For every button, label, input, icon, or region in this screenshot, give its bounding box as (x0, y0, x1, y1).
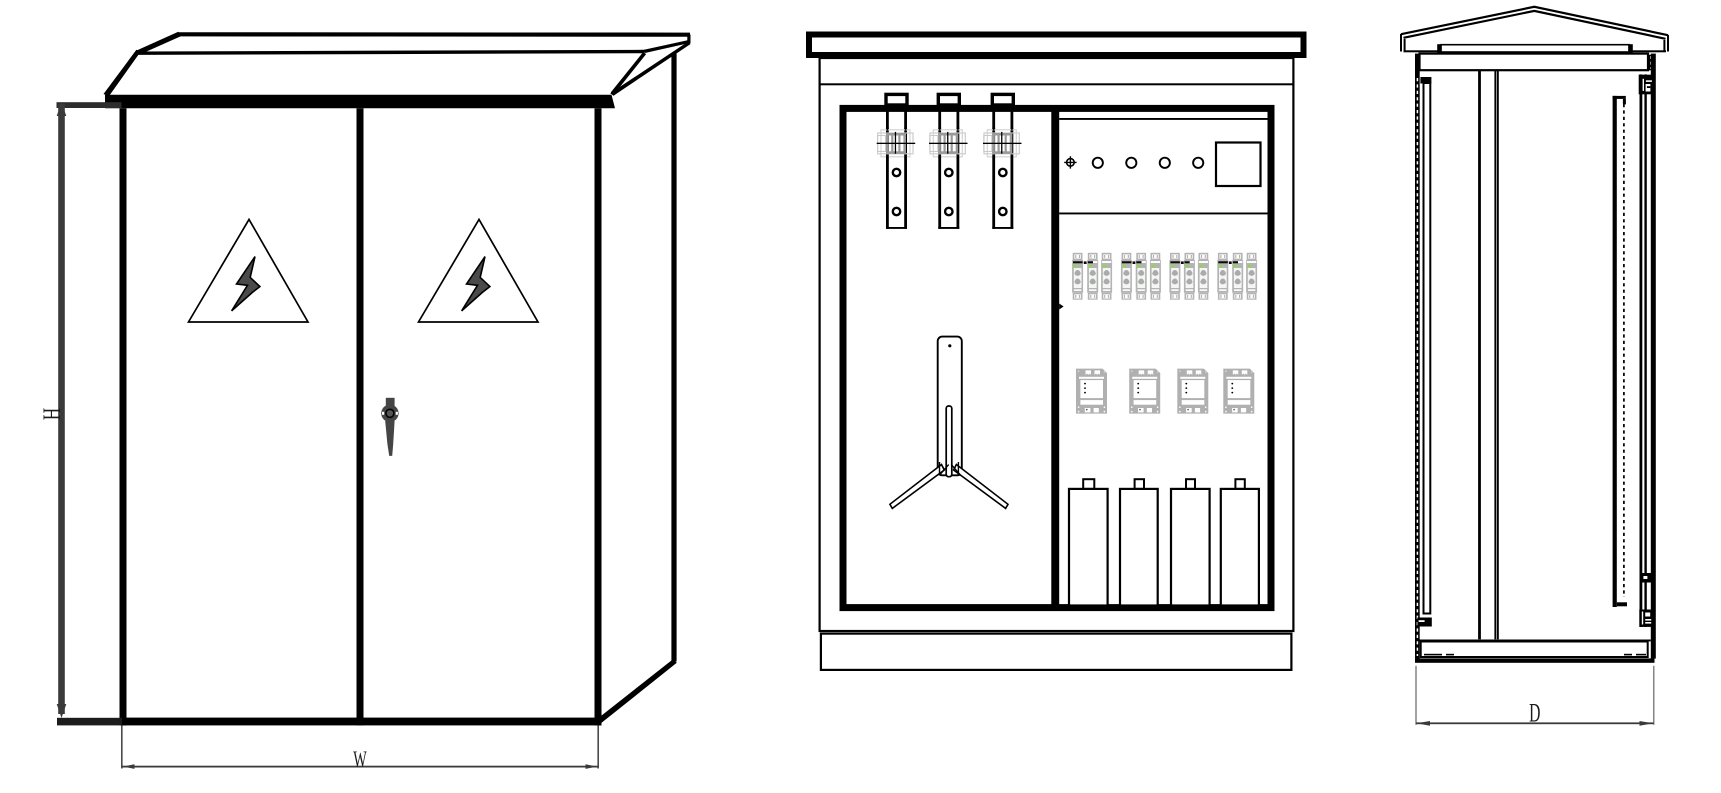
svg-text:D: D (1529, 698, 1540, 727)
svg-text:W: W (353, 748, 367, 773)
svg-text:H: H (38, 408, 66, 420)
